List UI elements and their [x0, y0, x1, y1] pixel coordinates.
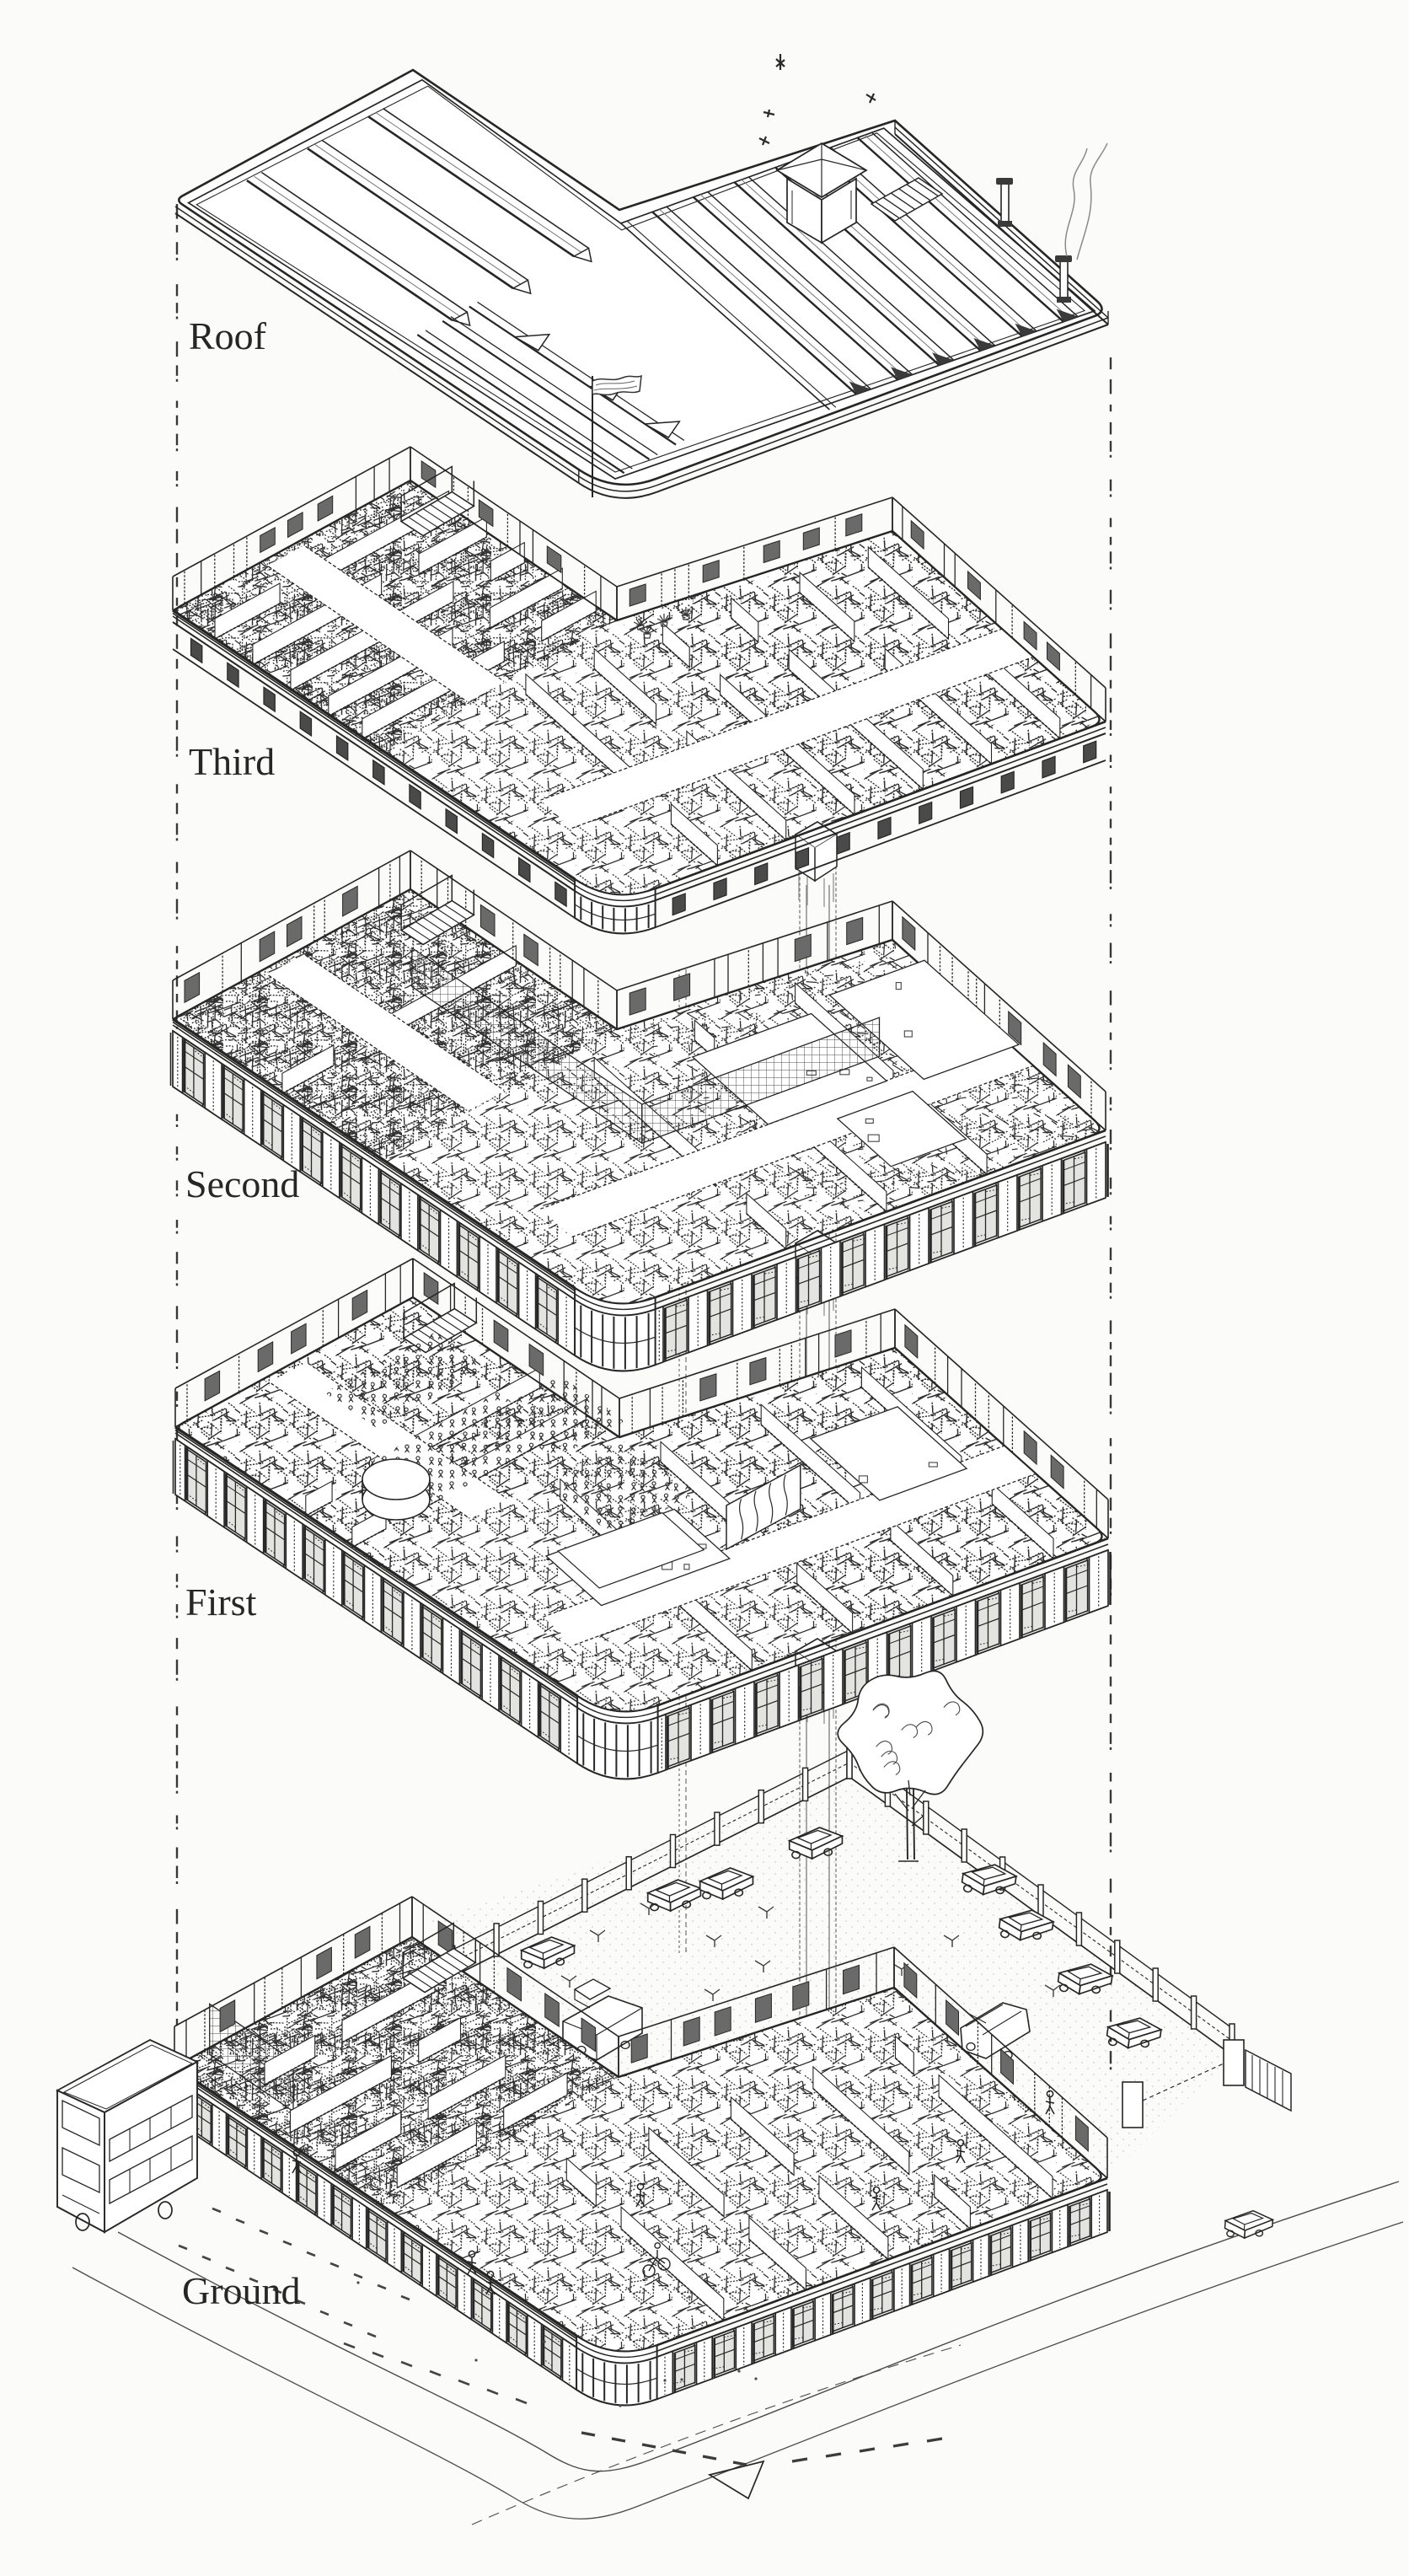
- svg-text:Roof: Roof: [189, 314, 267, 357]
- svg-text:Second: Second: [185, 1162, 299, 1205]
- svg-text:First: First: [185, 1580, 257, 1623]
- svg-text:Ground: Ground: [182, 2269, 301, 2312]
- svg-text:Third: Third: [189, 740, 275, 783]
